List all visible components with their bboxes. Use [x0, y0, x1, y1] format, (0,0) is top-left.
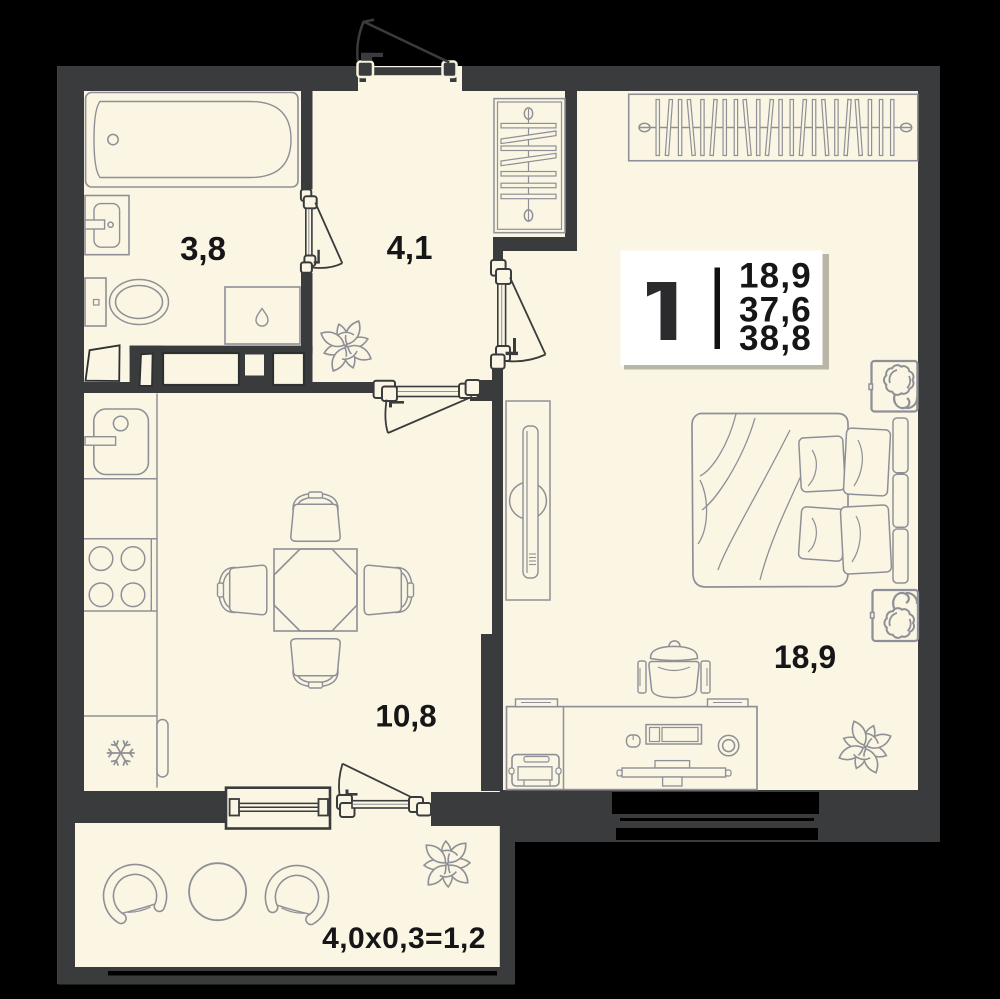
- svg-text:4,1: 4,1: [387, 229, 433, 266]
- svg-text:18,9: 18,9: [774, 639, 836, 675]
- svg-text:3,8: 3,8: [180, 230, 226, 267]
- svg-text:4,0x0,3=1,2: 4,0x0,3=1,2: [322, 922, 486, 955]
- svg-text:10,8: 10,8: [375, 698, 436, 734]
- svg-text:38,8: 38,8: [739, 319, 812, 358]
